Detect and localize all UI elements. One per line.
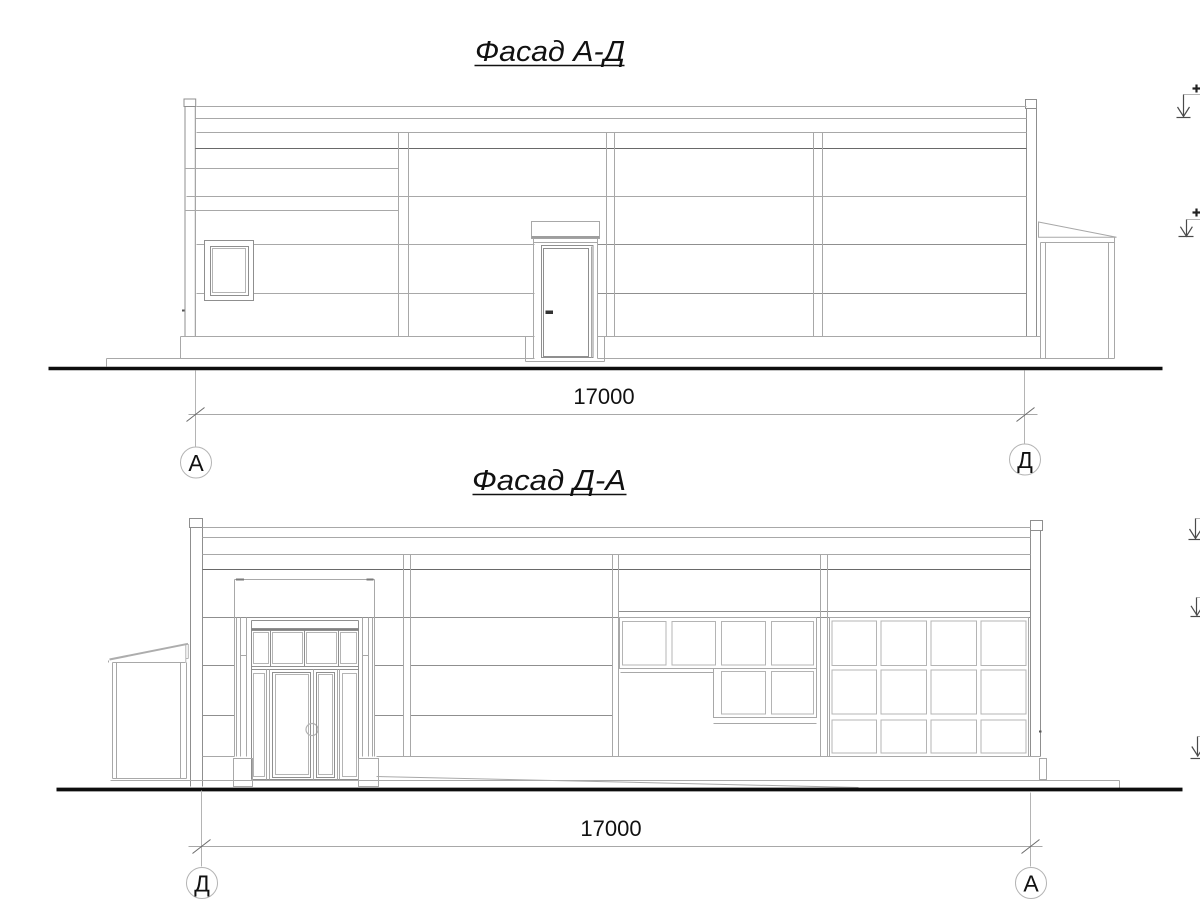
svg-text:17000: 17000 — [580, 816, 641, 841]
svg-text:Фасад Д-А: Фасад Д-А — [472, 465, 626, 497]
svg-text:Фасад А-Д: Фасад А-Д — [475, 36, 625, 68]
svg-text:А: А — [1023, 871, 1039, 897]
svg-text:17000: 17000 — [573, 384, 634, 409]
svg-text:Д: Д — [1017, 447, 1033, 473]
svg-text:Д: Д — [194, 871, 210, 897]
svg-text:А: А — [188, 450, 204, 476]
